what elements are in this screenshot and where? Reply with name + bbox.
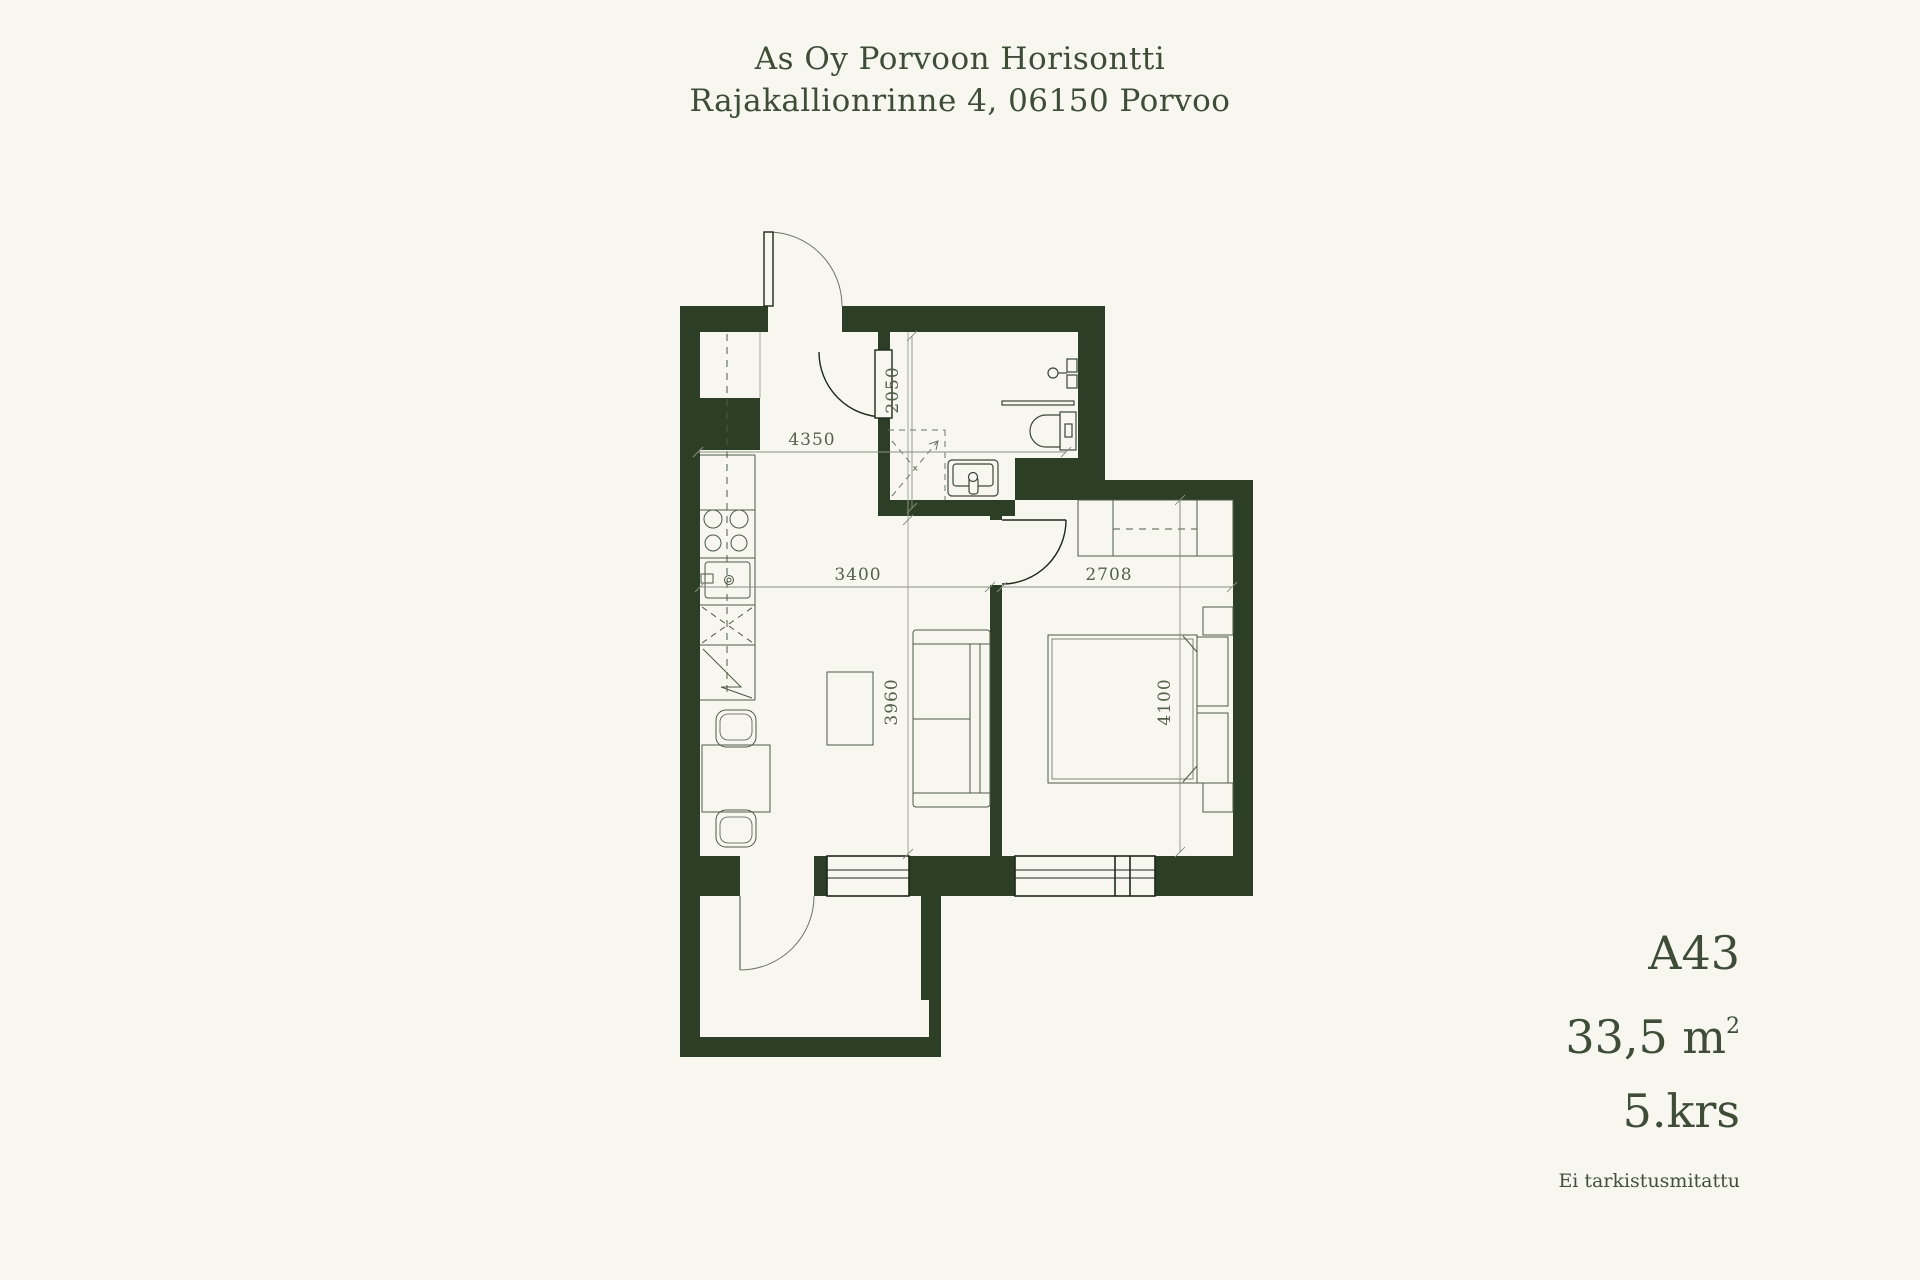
area-value: 33,5 m [1565,1010,1726,1064]
pillow [1197,713,1228,783]
sofa [913,630,990,807]
wall-bathroom-left-lower [878,417,890,512]
dim-hall-width: 4350 [788,430,835,450]
building-address: Rajakallionrinne 4, 06150 Porvoo [0,80,1920,122]
apartment-floor: 5.krs [1180,1074,1740,1148]
wall-entry-pilaster [700,398,760,450]
apartment-id: A43 [1180,916,1740,990]
nightstand [1203,607,1233,635]
balcony-wall-notch [921,1000,929,1037]
floor-plan-drawing: 4350 2050 3400 2708 3960 4100 [540,180,1280,1080]
nightstand [1203,783,1233,812]
bedroom-door [1002,520,1066,584]
shower-mixer-icon [1048,359,1077,388]
bedroom-window [1015,856,1155,896]
towel-rail-icon [1002,401,1074,405]
chair [716,710,756,747]
toilet-icon [1030,412,1076,450]
wall-left [680,306,700,1057]
dim-bathroom-depth: 2050 [883,366,903,413]
bedroom-furniture [1048,500,1233,812]
dimension-lines [693,331,1237,859]
pillow [1197,637,1228,706]
wall-bathroom-exterior [1078,306,1105,500]
apartment-info: A43 33,5 m2 5.krs Ei tarkistusmitattu [1180,916,1740,1192]
wardrobe [1078,500,1233,556]
chair [716,810,756,847]
coffee-table [827,672,873,745]
dim-living-width: 3400 [834,565,881,585]
entry-door-opening [768,306,842,332]
floor-plan: 4350 2050 3400 2708 3960 4100 [540,180,1280,1080]
title-block: As Oy Porvoon Horisontti Rajakallionrinn… [0,38,1920,122]
wall-partition-upper [990,500,1002,520]
wall-partition-lower [990,585,1002,856]
balcony-door [740,896,814,970]
wall-top [680,306,1105,332]
building-name: As Oy Porvoon Horisontti [0,38,1920,80]
dim-living-depth: 3960 [882,678,902,725]
wall-bedroom-right [1233,480,1253,896]
stove-icon [704,510,748,551]
bed [1048,635,1228,783]
bathroom-sink-icon [948,460,998,496]
measurement-note: Ei tarkistusmitattu [1180,1170,1740,1192]
area-exponent: 2 [1726,1014,1740,1039]
entry-door [764,232,842,306]
balcony-door-opening [740,856,814,896]
living-furniture [702,630,990,847]
wall-bathroom-corner-block [1015,458,1078,500]
dim-bedroom-width: 2708 [1085,565,1132,585]
wall-bathroom-left-upper [878,332,890,352]
bathroom-door [819,350,892,418]
dining-table [702,745,770,812]
dim-bedroom-depth: 4100 [1155,678,1175,725]
kitchen-sink-icon [701,562,750,598]
apartment-area: 33,5 m2 [1180,990,1740,1074]
shower-area [888,430,945,500]
wall-balcony-bottom [680,1037,941,1057]
living-room-window [827,856,909,896]
